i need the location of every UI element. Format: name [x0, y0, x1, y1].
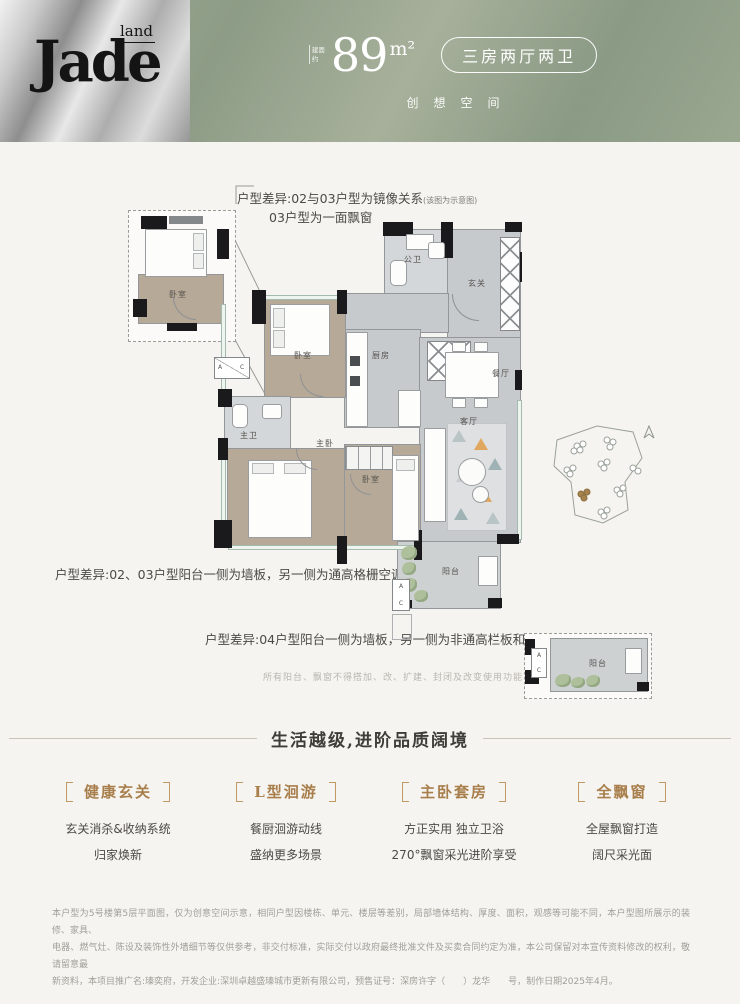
room-label-master-bath: 主卫	[240, 430, 258, 441]
annotation-top-line2: 03户型为一面飘窗	[237, 210, 372, 225]
ac-letter-a: A	[218, 364, 222, 371]
ac-letter-a: A	[537, 652, 541, 659]
feature-title: L型洄游	[254, 781, 318, 802]
room-label-inset-balcony: 阳台	[589, 658, 607, 669]
feature-master-suite: 主卧套房 方正实用 独立卫浴 270°飘窗采光进阶享受	[370, 781, 538, 869]
annotation-bottom: 户型差异:04户型阳台一侧为墙板，另一侧为非通高栏板和空调位	[205, 629, 563, 648]
feature-l-circulation: L型洄游 餐厨洄游动线 盛纳更多场景	[202, 781, 370, 869]
ac-box-empty	[392, 614, 412, 640]
ac-letter-c: C	[537, 667, 541, 674]
ac-box-bedroom: A C	[214, 357, 250, 379]
feature-line: 方正实用 独立卫浴	[370, 816, 538, 842]
area-row: 建面约 89 m² 三房两厅两卫	[309, 32, 597, 78]
inset-bedroom-detail: 卧室	[128, 210, 236, 342]
feature-line: 餐厨洄游动线	[202, 816, 370, 842]
feature-title: 健康玄关	[84, 781, 152, 802]
unit-type-badge: 三房两厅两卫	[441, 37, 597, 73]
feature-title: 全飘窗	[596, 781, 647, 802]
feature-line: 玄关消杀&收纳系统	[34, 816, 202, 842]
annotation-top-line1: 户型差异:02与03户型为镜像关系	[237, 191, 423, 206]
room-hall	[345, 294, 448, 332]
feature-line: 270°飘窗采光进阶享受	[370, 842, 538, 868]
features-section: 生活越级,进阶品质阔境 健康玄关 玄关消杀&收纳系统 归家焕新 L型洄游 餐厨洄…	[0, 726, 740, 869]
ac-letter-a: A	[399, 583, 403, 590]
annotation-note: 所有阳台、飘窗不得搭加、改、扩建、封闭及改变使用功能	[263, 670, 523, 683]
feature-healthy-foyer: 健康玄关 玄关消杀&收纳系统 归家焕新	[34, 781, 202, 869]
room-label-dining: 餐厅	[492, 368, 510, 379]
room-label-inset-bedroom: 卧室	[169, 289, 187, 300]
room-label-public-bath: 公卫	[404, 254, 422, 265]
room-label-living: 客厅	[460, 416, 478, 427]
area-prefix-label: 建面约	[309, 45, 328, 63]
room-label-bedroom-2: 卧室	[294, 350, 312, 361]
logo-jade-text: Jade	[34, 34, 160, 90]
ac-box-balcony: A C	[392, 579, 410, 611]
annotation-mid: 户型差异:02、03户型阳台一侧为墙板，另一侧为通高格栅空调机位	[55, 564, 429, 583]
features-heading: 生活越级,进阶品质阔境	[271, 726, 469, 751]
tree-cluster	[571, 441, 586, 454]
feature-line: 归家焕新	[34, 842, 202, 868]
area-unit: m²	[389, 38, 415, 60]
ac-letter-c: C	[399, 600, 403, 607]
divider-line	[483, 738, 731, 739]
disclaimer-line: 新资料，本项目推广名:瑧奕府，开发企业:深圳卓越盛瑧城市更新有限公司，预售证号：…	[52, 974, 690, 991]
feature-line: 阔尺采光面	[538, 842, 706, 868]
jade-land-logo: land Jade	[0, 0, 190, 142]
header-info: 建面约 89 m² 三房两厅两卫 创想空间	[178, 0, 728, 142]
ac-letter-c: C	[240, 364, 244, 371]
unit-location-marker	[578, 489, 590, 501]
tagline: 创想空间	[391, 94, 514, 111]
room-label-foyer: 玄关	[468, 278, 486, 289]
north-arrow-icon	[644, 426, 654, 438]
divider-line	[9, 738, 257, 739]
feature-bay-windows: 全飘窗 全屋飘窗打造 阔尺采光面	[538, 781, 706, 869]
poster-page: land Jade 建面约 89 m² 三房两厅两卫 创想空间 户型差异:02与…	[0, 0, 740, 1004]
feature-line: 全屋飘窗打造	[538, 816, 706, 842]
area-number: 89	[331, 32, 388, 78]
inset-balcony-detail: A C 阳台	[524, 633, 652, 699]
annotation-top: 户型差异:02与03户型为镜像关系(该图为示意图) 03户型为一面飘窗	[237, 188, 477, 226]
room-label-bedroom-3: 卧室	[362, 474, 380, 485]
site-sketch	[545, 418, 660, 538]
room-label-kitchen: 厨房	[372, 350, 390, 361]
feature-line: 盛纳更多场景	[202, 842, 370, 868]
disclaimer-line: 本户型为5号楼第5层平面图，仅为创意空间示意，相同户型因楼栋、单元、楼层等差别，…	[52, 906, 690, 940]
feature-title: 主卧套房	[420, 781, 488, 802]
header: land Jade 建面约 89 m² 三房两厅两卫 创想空间	[0, 0, 740, 142]
annotation-top-note: (该图为示意图)	[423, 196, 477, 205]
room-label-master-bedroom: 主卧	[316, 438, 334, 449]
floorplan: 户型差异:02与03户型为镜像关系(该图为示意图) 03户型为一面飘窗 户型差异…	[0, 142, 740, 710]
disclaimer-line: 电器、燃气灶、陈设及装饰性外墙细节等仅供参考，非交付标准，实际交付以政府最终批准…	[52, 940, 690, 974]
room-label-balcony: 阳台	[442, 566, 460, 577]
disclaimer: 本户型为5号楼第5层平面图，仅为创意空间示意，相同户型因楼栋、单元、楼层等差别，…	[52, 906, 690, 991]
